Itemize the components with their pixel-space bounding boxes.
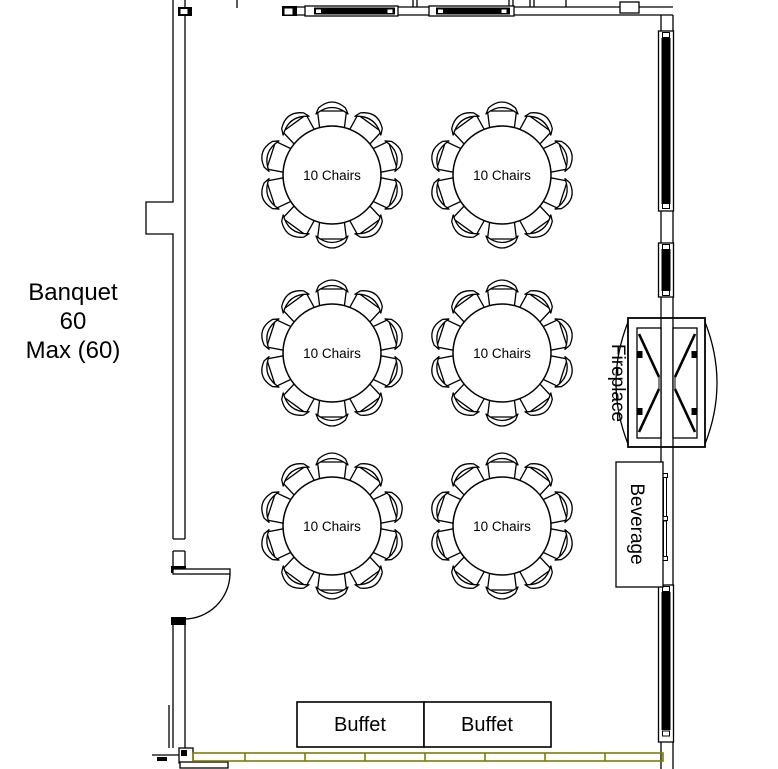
banquet-table-4: 10 Chairs bbox=[428, 280, 577, 426]
room-max-capacity: Max (60) bbox=[26, 337, 121, 364]
table-label: 10 Chairs bbox=[473, 519, 531, 534]
banquet-table-3: 10 Chairs bbox=[258, 280, 407, 426]
door-leaf bbox=[180, 762, 228, 768]
table-label: 10 Chairs bbox=[303, 168, 361, 183]
window bbox=[659, 31, 674, 211]
room-capacity-label: Banquet 60 Max (60) bbox=[26, 279, 121, 364]
buffet-label: Buffet bbox=[461, 714, 513, 736]
beverage-label: Beverage bbox=[626, 483, 647, 564]
left-wall bbox=[146, 0, 193, 763]
window bbox=[429, 6, 514, 16]
fireplace-label: Fireplace bbox=[607, 344, 628, 422]
room-capacity: 60 bbox=[60, 308, 87, 335]
table-label: 10 Chairs bbox=[473, 168, 531, 183]
air-wall-divider bbox=[193, 753, 663, 761]
banquet-table-1: 10 Chairs bbox=[258, 102, 407, 248]
banquet-floor-plan: Fireplace Beverage 10 Chairs 10 Chairs 1… bbox=[0, 0, 778, 769]
table-label: 10 Chairs bbox=[303, 346, 361, 361]
table-label: 10 Chairs bbox=[473, 346, 531, 361]
window bbox=[305, 6, 398, 16]
buffet-tables: Buffet Buffet bbox=[297, 702, 551, 747]
fireplace: Fireplace bbox=[607, 318, 717, 447]
beverage-station: Beverage bbox=[616, 462, 663, 587]
room-setup-name: Banquet bbox=[28, 279, 118, 306]
banquet-table-2: 10 Chairs bbox=[428, 102, 577, 248]
door-jamb bbox=[171, 617, 186, 625]
door-leaf bbox=[173, 569, 230, 574]
entry-door bbox=[173, 569, 230, 768]
banquet-table-5: 10 Chairs bbox=[258, 453, 407, 599]
window bbox=[659, 585, 674, 742]
top-wall bbox=[178, 0, 673, 16]
door-swing-arc bbox=[184, 574, 230, 619]
buffet-label: Buffet bbox=[334, 714, 386, 736]
table-label: 10 Chairs bbox=[303, 519, 361, 534]
wall-column bbox=[620, 2, 639, 13]
window bbox=[659, 243, 674, 297]
banquet-table-6: 10 Chairs bbox=[428, 453, 577, 599]
